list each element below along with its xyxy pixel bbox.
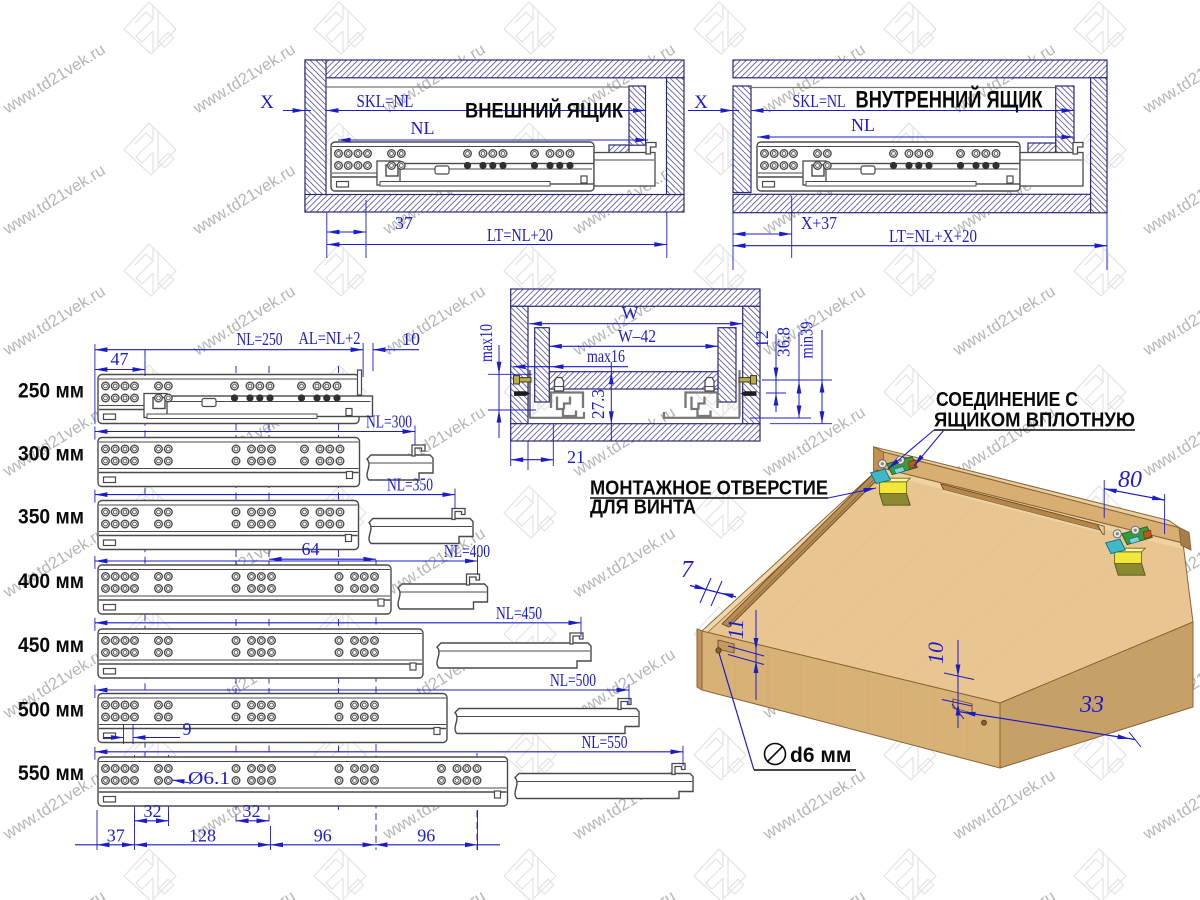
svg-text:ЯЩИКОМ ВПЛОТНУЮ: ЯЩИКОМ ВПЛОТНУЮ <box>934 409 1135 432</box>
svg-text:NL=500: NL=500 <box>550 670 596 690</box>
svg-text:12: 12 <box>752 330 772 348</box>
svg-text:NL: NL <box>411 118 435 138</box>
svg-text:300 мм: 300 мм <box>18 443 84 466</box>
svg-text:11: 11 <box>723 619 748 639</box>
svg-text:47: 47 <box>111 349 129 369</box>
svg-text:max16: max16 <box>587 346 625 366</box>
svg-text:ВНЕШНИЙ ЯЩИК: ВНЕШНИЙ ЯЩИК <box>465 98 624 123</box>
svg-text:LT=NL+20: LT=NL+20 <box>487 225 553 245</box>
svg-text:32: 32 <box>144 801 162 821</box>
svg-text:X: X <box>260 92 274 113</box>
svg-text:NL=400: NL=400 <box>444 541 490 561</box>
svg-text:128: 128 <box>189 825 216 845</box>
svg-text:max10: max10 <box>476 324 496 362</box>
svg-text:Ø6.1: Ø6.1 <box>188 768 230 788</box>
svg-text:7: 7 <box>681 557 694 583</box>
svg-text:SKL=NL: SKL=NL <box>357 91 414 111</box>
svg-text:W: W <box>622 303 639 323</box>
svg-text:96: 96 <box>417 825 435 845</box>
svg-text:NL=250: NL=250 <box>237 329 283 349</box>
svg-text:LT=NL+X+20: LT=NL+X+20 <box>889 226 977 246</box>
svg-text:X: X <box>694 92 708 113</box>
svg-text:ДЛЯ ВИНТА: ДЛЯ ВИНТА <box>590 496 696 519</box>
svg-text:450 мм: 450 мм <box>18 634 84 657</box>
svg-text:AL=NL+2: AL=NL+2 <box>299 328 361 348</box>
svg-text:9: 9 <box>183 719 192 739</box>
svg-text:96: 96 <box>314 825 332 845</box>
svg-text:X+37: X+37 <box>801 213 837 233</box>
svg-text:500 мм: 500 мм <box>18 699 84 722</box>
svg-text:W–42: W–42 <box>618 326 656 346</box>
svg-text:NL=300: NL=300 <box>366 412 412 432</box>
svg-text:NL=450: NL=450 <box>496 603 542 623</box>
svg-text:21: 21 <box>567 447 585 467</box>
svg-text:NL=350: NL=350 <box>387 475 433 495</box>
svg-text:ВНУТРЕННИЙ ЯЩИК: ВНУТРЕННИЙ ЯЩИК <box>856 86 1043 114</box>
svg-text:NL=550: NL=550 <box>582 732 628 752</box>
svg-text:64: 64 <box>302 539 320 559</box>
svg-text:10: 10 <box>923 642 948 664</box>
svg-text:min39: min39 <box>797 321 817 358</box>
svg-text:550 мм: 550 мм <box>18 762 84 785</box>
svg-text:NL: NL <box>851 115 875 135</box>
svg-text:37: 37 <box>107 825 125 845</box>
svg-text:d6 мм: d6 мм <box>790 744 851 767</box>
svg-text:33: 33 <box>1079 692 1104 718</box>
svg-text:250 мм: 250 мм <box>18 380 84 403</box>
svg-text:SKL=NL: SKL=NL <box>793 91 846 111</box>
svg-text:27.3: 27.3 <box>588 389 608 419</box>
svg-text:32: 32 <box>243 801 261 821</box>
svg-text:37: 37 <box>395 213 413 233</box>
svg-text:350 мм: 350 мм <box>18 506 84 529</box>
svg-text:80: 80 <box>1118 467 1142 493</box>
svg-text:400 мм: 400 мм <box>18 570 84 593</box>
svg-text:10: 10 <box>402 329 420 349</box>
svg-text:36.8: 36.8 <box>774 327 794 357</box>
